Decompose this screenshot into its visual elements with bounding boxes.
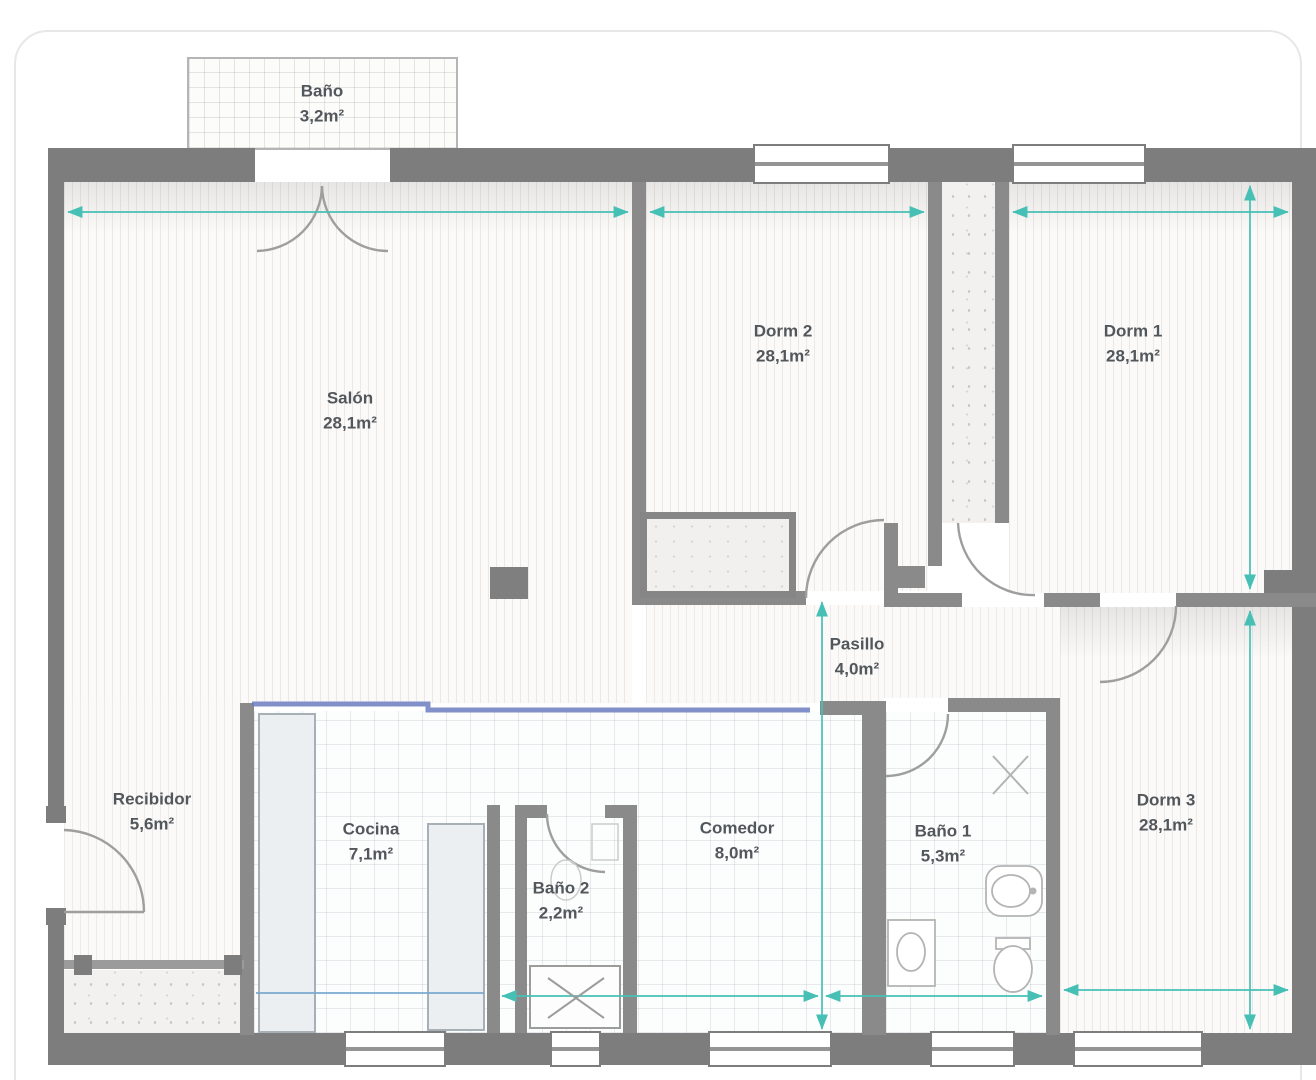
room-area: 4,0m² xyxy=(830,657,885,682)
wall-dorm1-dorm3 xyxy=(1176,593,1316,607)
floor-pasillo-east xyxy=(884,607,1060,698)
room-label-bano1: Baño 1 5,3m² xyxy=(915,819,972,868)
room-label-bano2: Baño 2 2,2m² xyxy=(533,876,590,925)
wall-segment xyxy=(888,148,1014,182)
wall-segment xyxy=(48,148,64,823)
room-area: 28,1m² xyxy=(1137,813,1196,838)
shower-tray-bano2 xyxy=(529,965,621,1029)
structural-column xyxy=(490,567,528,599)
wall-bano1-north xyxy=(948,698,1060,712)
closet-dorm2 xyxy=(640,512,796,598)
wall-bano2-west-inner xyxy=(515,805,527,1033)
room-label-comedor: Comedor 8,0m² xyxy=(700,816,775,865)
room-area: 3,2m² xyxy=(300,104,344,129)
wall-segment xyxy=(832,1033,930,1065)
room-name: Pasillo xyxy=(830,632,885,657)
room-name: Dorm 2 xyxy=(754,319,813,344)
wall-comedor-bano1 xyxy=(862,703,886,1035)
room-name: Dorm 1 xyxy=(1104,319,1163,344)
wall-cap xyxy=(224,955,242,975)
floor-bano1 xyxy=(886,712,1046,1033)
wall-segment xyxy=(390,148,755,182)
wall-segment xyxy=(446,1033,550,1065)
room-area: 8,0m² xyxy=(700,841,775,866)
room-label-dorm3: Dorm 3 28,1m² xyxy=(1137,788,1196,837)
wall-segment xyxy=(48,148,255,182)
room-area: 28,1m² xyxy=(754,344,813,369)
room-area: 28,1m² xyxy=(1104,344,1163,369)
room-name: Recibidor xyxy=(113,787,191,812)
window xyxy=(344,1031,446,1067)
room-area: 5,3m² xyxy=(915,844,972,869)
wall-segment xyxy=(884,593,962,607)
room-name: Comedor xyxy=(700,816,775,841)
room-name: Baño 2 xyxy=(533,876,590,901)
wall-block xyxy=(893,566,925,588)
room-area: 28,1m² xyxy=(323,411,377,436)
room-label-dorm1: Dorm 1 28,1m² xyxy=(1104,319,1163,368)
window xyxy=(753,144,890,184)
room-area: 2,2m² xyxy=(533,901,590,926)
window xyxy=(1012,144,1146,184)
wall-gallery-west xyxy=(928,182,942,566)
wall-dorm1-dorm3 xyxy=(1044,593,1100,607)
room-name: Salón xyxy=(323,386,377,411)
floor-dorm1 xyxy=(1009,182,1292,593)
floor-plan-canvas: Baño 3,2m² Salón 28,1m² Dorm 2 28,1m² Do… xyxy=(0,0,1316,1080)
wall-gallery-east xyxy=(995,182,1009,523)
kitchen-counter-right xyxy=(427,823,485,1031)
wall-bano2-east xyxy=(623,805,637,1033)
room-label-pasillo: Pasillo 4,0m² xyxy=(830,632,885,681)
wall-door-jamb xyxy=(46,806,66,823)
wall-segment xyxy=(1015,1033,1073,1065)
room-name: Baño xyxy=(300,79,344,104)
window xyxy=(550,1031,601,1067)
wall-bano2-door-jamb xyxy=(605,805,623,818)
room-label-bano-top: Baño 3,2m² xyxy=(300,79,344,128)
wall-bano2-west xyxy=(487,805,500,1033)
window xyxy=(1073,1031,1203,1067)
wall-segment xyxy=(48,1033,344,1065)
room-label-cocina: Cocina 7,1m² xyxy=(343,817,400,866)
wall-segment xyxy=(601,1033,708,1065)
wall-cap xyxy=(74,955,92,975)
room-name: Baño 1 xyxy=(915,819,972,844)
room-area: 7,1m² xyxy=(343,842,400,867)
room-label-salon: Salón 28,1m² xyxy=(323,386,377,435)
room-area: 5,6m² xyxy=(113,812,191,837)
room-name: Dorm 3 xyxy=(1137,788,1196,813)
window xyxy=(708,1031,832,1067)
wall-pilaster xyxy=(1264,570,1292,594)
room-name: Cocina xyxy=(343,817,400,842)
wall-bano1-dorm3 xyxy=(1046,698,1060,1035)
wall-segment xyxy=(1144,148,1316,182)
floor-gallery-column xyxy=(942,182,995,523)
kitchen-counter-left xyxy=(258,713,316,1033)
wall-recibidor-cocina xyxy=(240,703,254,1035)
wall-bano2-north-stub xyxy=(527,805,547,818)
room-label-dorm2: Dorm 2 28,1m² xyxy=(754,319,813,368)
window xyxy=(930,1031,1015,1067)
floor-salon xyxy=(64,182,632,703)
room-label-recibidor: Recibidor 5,6m² xyxy=(113,787,191,836)
floor-terrace-recibidor xyxy=(64,970,240,1033)
